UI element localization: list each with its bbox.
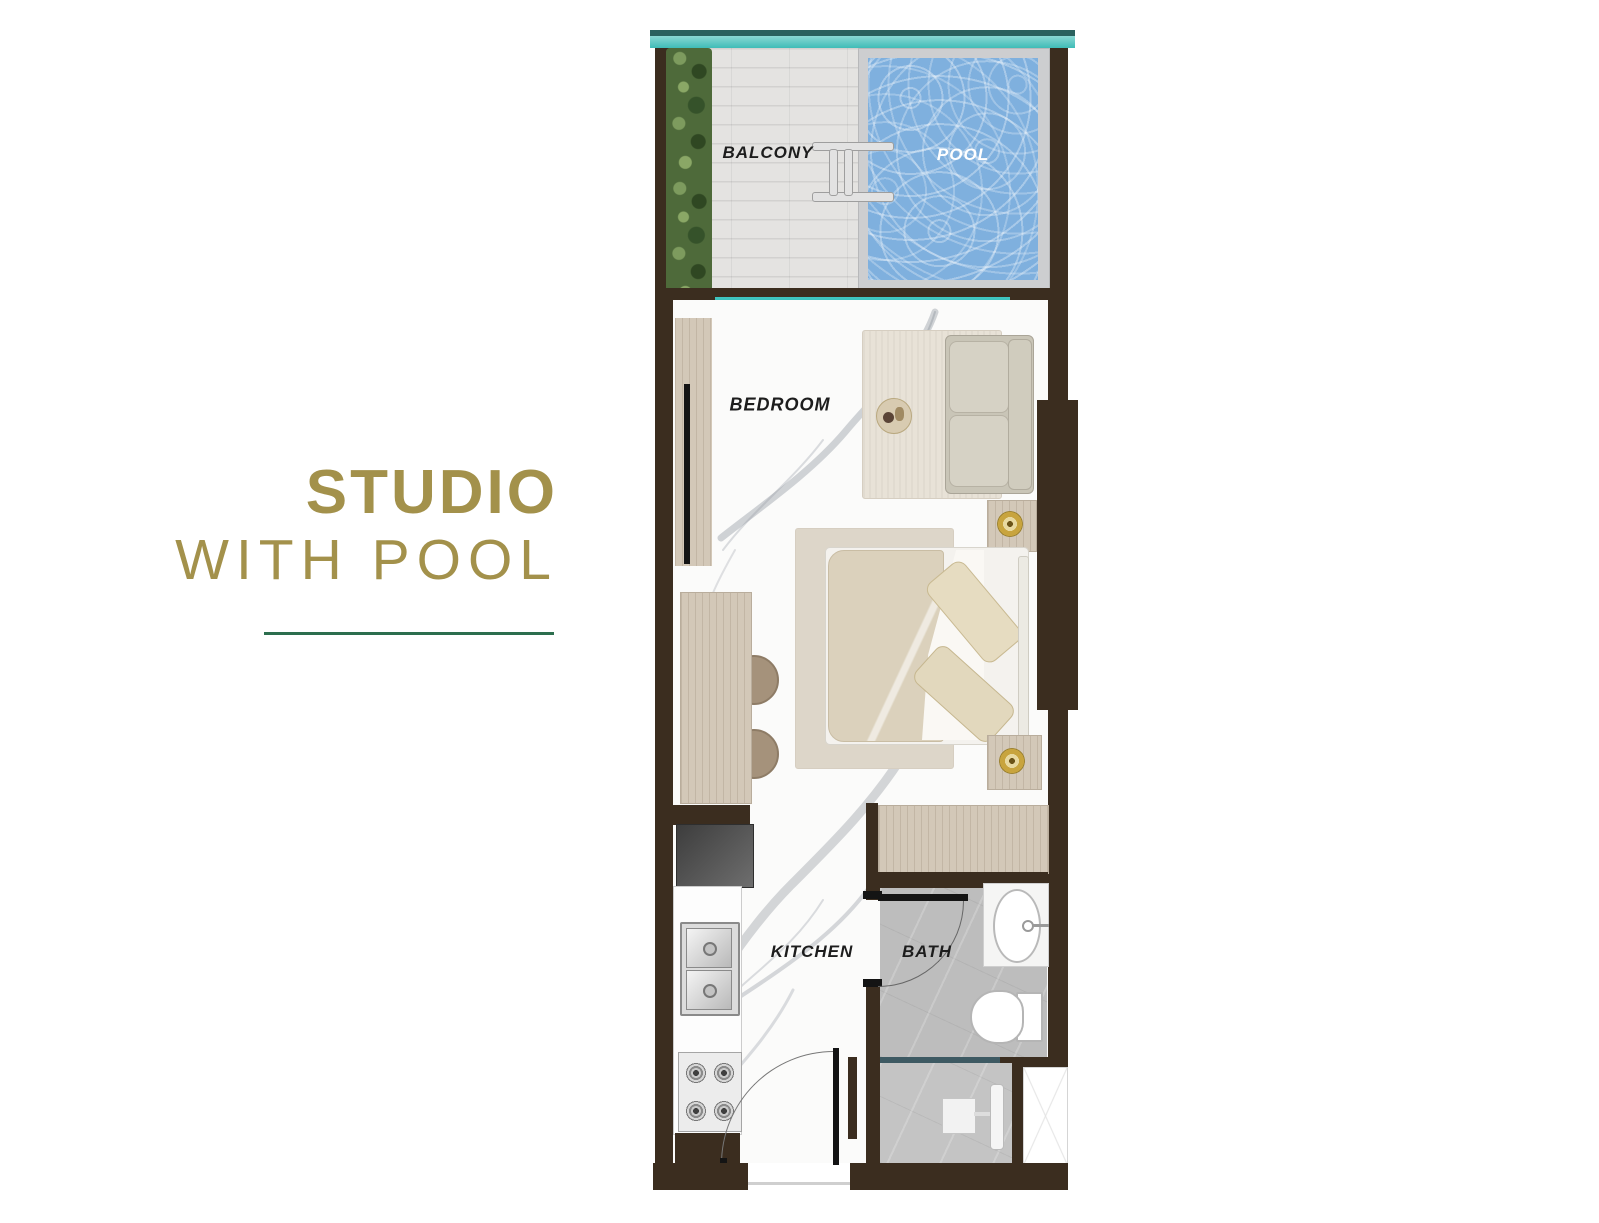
pool-ladder-step (829, 149, 838, 196)
floor-plan: BALCONY POOL (650, 30, 1080, 1192)
toilet-bowl (970, 990, 1024, 1044)
cooktop-burner (685, 1062, 707, 1084)
bedroom-label: BEDROOM (730, 395, 831, 416)
sofa-backrest (1008, 339, 1032, 490)
dresser (878, 805, 1049, 874)
entry-threshold (748, 1182, 850, 1185)
bed (825, 547, 1029, 745)
wall-niche-left (1012, 1067, 1023, 1163)
coffee-table-decor (883, 412, 894, 423)
wall-bottom-right (850, 1163, 1068, 1190)
wardrobe-door-track (684, 384, 690, 564)
wall-bottom-left (653, 1163, 748, 1190)
floor-plan-page: STUDIO WITH POOL BALCONY POOL (0, 0, 1599, 1223)
faucet-icon (1033, 924, 1049, 927)
pool-ladder-rail (812, 142, 894, 151)
balcony-plants (666, 48, 712, 292)
page-title: STUDIO (140, 460, 558, 526)
sofa-seat-cushion (949, 341, 1009, 413)
coffee-table-decor (895, 407, 904, 421)
pool-label: POOL (937, 145, 989, 165)
table-lamp (997, 511, 1023, 537)
vanity-basin (993, 889, 1041, 963)
bed-headboard (1018, 556, 1029, 738)
kitchen-label: KITCHEN (771, 942, 854, 962)
service-shaft (1023, 1067, 1068, 1165)
wall-bath-left (866, 983, 880, 1163)
cooktop-burner (685, 1100, 707, 1122)
top-glass-strip (650, 36, 1075, 48)
cooktop-burner (713, 1062, 735, 1084)
coffee-table (876, 398, 912, 434)
balcony-label: BALCONY (722, 143, 813, 163)
wall-stub-entry (848, 1057, 857, 1139)
sink-basin (686, 970, 732, 1010)
shower-seat (942, 1098, 976, 1134)
pool-ladder-rail (812, 192, 894, 202)
entry-door-leaf (833, 1048, 839, 1165)
dining-table (680, 592, 752, 804)
kitchen-sink (680, 922, 740, 1016)
bath-door-leaf (878, 894, 968, 901)
page-subtitle: WITH POOL (140, 528, 558, 592)
wall-stub-dresser (866, 803, 878, 872)
sofa (945, 335, 1034, 494)
wall-stub-kitchen (655, 805, 750, 825)
pool-ladder-step (844, 149, 853, 196)
wall-pillar (1037, 400, 1078, 710)
fridge (676, 824, 754, 888)
vanity-counter (983, 883, 1049, 967)
title-divider (264, 632, 554, 635)
sink-basin (686, 928, 732, 968)
sink-drain (703, 984, 717, 998)
shower-arm (974, 1112, 990, 1116)
table-lamp (999, 748, 1025, 774)
pool-water (868, 58, 1038, 280)
shower-panel (990, 1084, 1004, 1150)
bath-label: BATH (902, 942, 952, 962)
wardrobe (675, 318, 712, 566)
title-block: STUDIO WITH POOL (140, 460, 558, 635)
sofa-seat-cushion (949, 415, 1009, 487)
sink-drain (703, 942, 717, 956)
